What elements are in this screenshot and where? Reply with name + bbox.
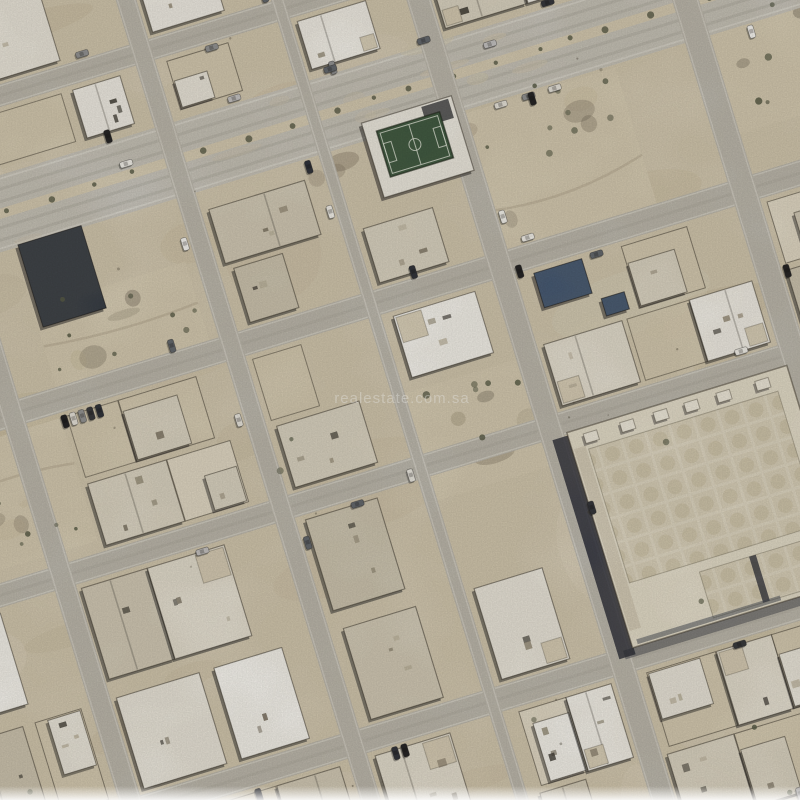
bottom-fade-overlay xyxy=(0,786,800,800)
watermark-text: realestate.com.sa xyxy=(334,390,469,407)
satellite-image-viewport: realestate.com.sa xyxy=(0,0,800,800)
satellite-map-canvas: realestate.com.sa xyxy=(0,0,800,800)
